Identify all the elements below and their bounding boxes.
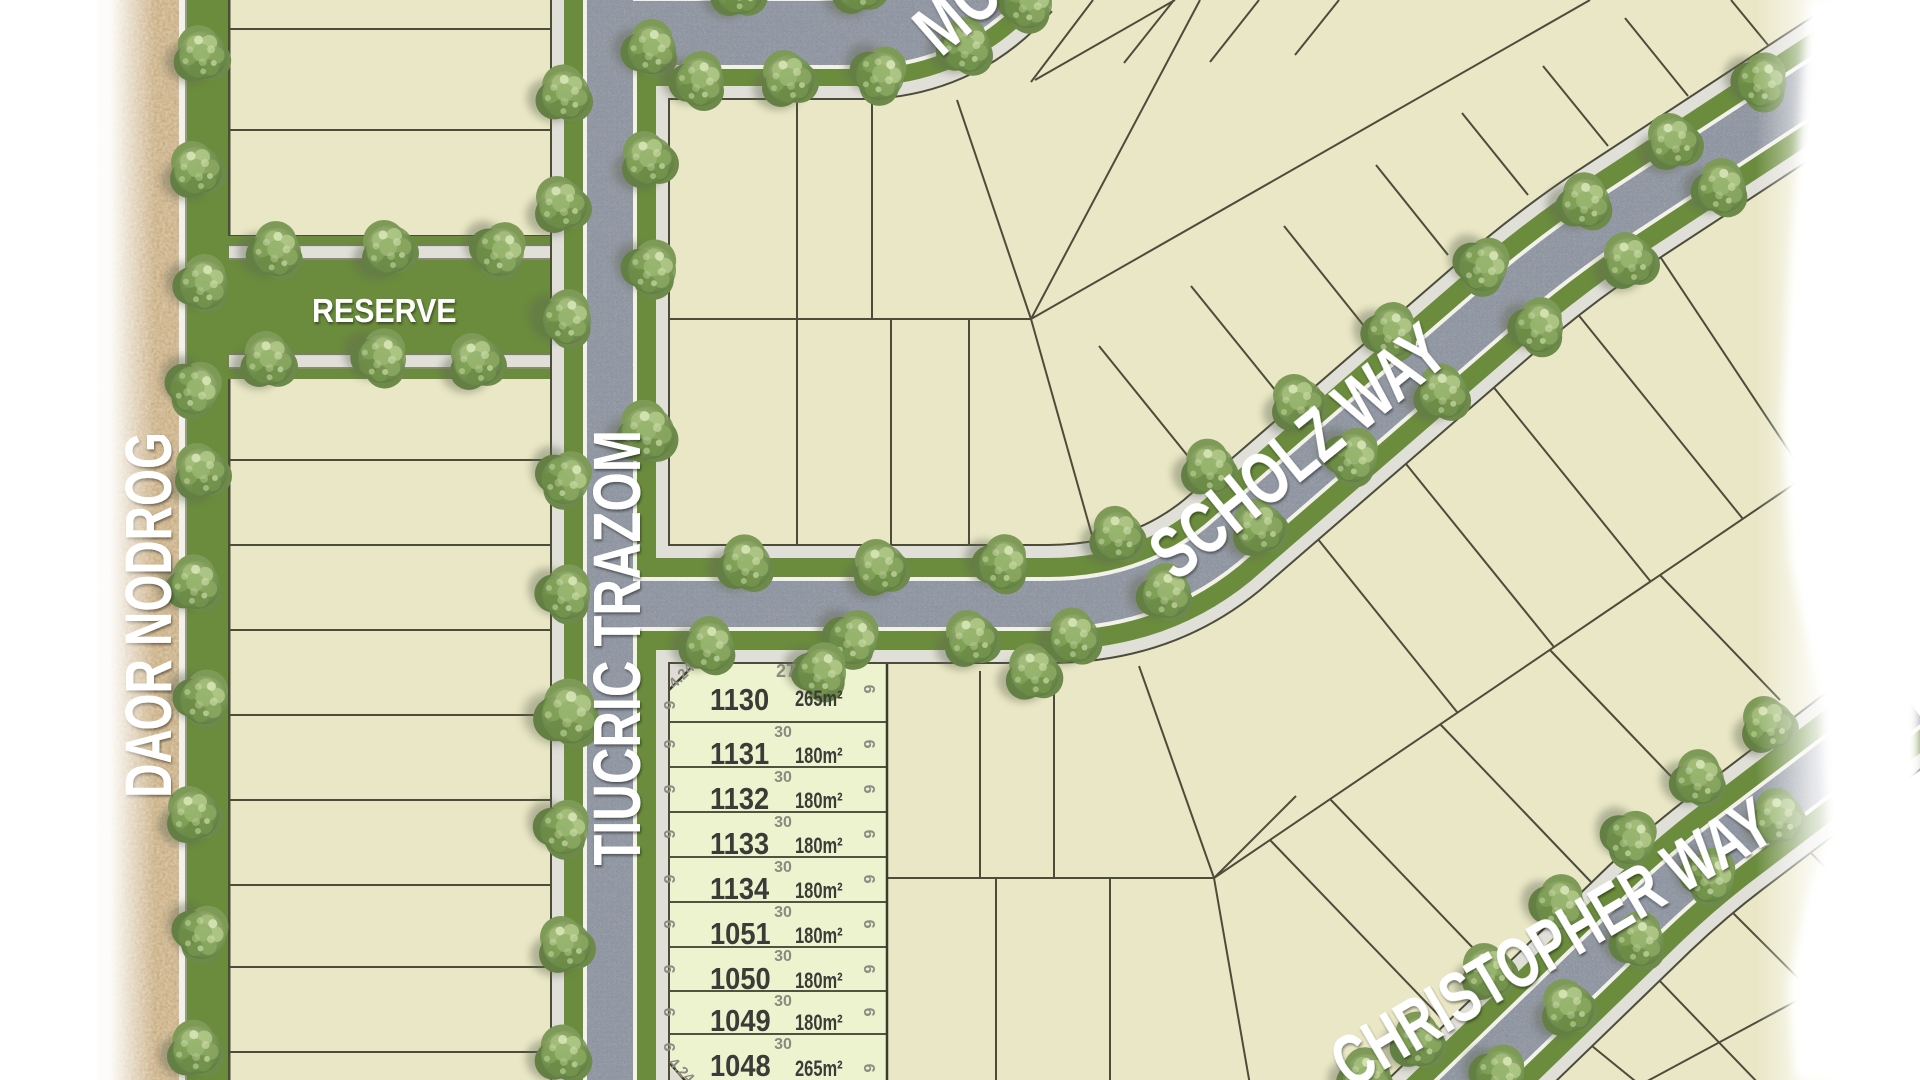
- svg-text:265m²: 265m²: [795, 1057, 843, 1080]
- svg-text:30: 30: [774, 859, 792, 876]
- svg-text:9: 9: [662, 700, 679, 709]
- svg-text:30: 30: [774, 724, 792, 741]
- svg-text:9: 9: [862, 1007, 879, 1016]
- svg-text:C: C: [579, 661, 655, 698]
- svg-text:180m²: 180m²: [795, 789, 843, 814]
- svg-text:9: 9: [862, 739, 879, 748]
- svg-text:9: 9: [862, 1063, 879, 1072]
- svg-text:180m²: 180m²: [795, 744, 843, 769]
- svg-text:30: 30: [774, 993, 792, 1010]
- svg-text:30: 30: [774, 904, 792, 921]
- svg-text:I: I: [579, 821, 655, 835]
- svg-text:180m²: 180m²: [795, 924, 843, 949]
- svg-text:180m²: 180m²: [795, 834, 843, 859]
- svg-text:Z: Z: [579, 512, 655, 543]
- svg-text:9: 9: [662, 829, 679, 838]
- svg-text:30: 30: [774, 769, 792, 786]
- svg-text:1132: 1132: [710, 782, 769, 816]
- svg-text:9: 9: [862, 829, 879, 838]
- svg-text:1133: 1133: [710, 827, 769, 861]
- svg-text:9: 9: [662, 1042, 679, 1051]
- svg-text:30: 30: [774, 1036, 792, 1053]
- svg-text:1134: 1134: [710, 872, 770, 906]
- svg-text:9: 9: [662, 739, 679, 748]
- svg-text:9: 9: [662, 964, 679, 973]
- svg-text:M: M: [579, 430, 655, 472]
- svg-text:1048: 1048: [710, 1049, 771, 1080]
- svg-text:O: O: [579, 472, 655, 511]
- svg-text:R: R: [579, 711, 655, 748]
- svg-text:A: A: [579, 543, 655, 580]
- svg-text:9: 9: [662, 919, 679, 928]
- svg-text:9: 9: [862, 919, 879, 928]
- svg-text:1050: 1050: [710, 962, 771, 996]
- svg-text:180m²: 180m²: [795, 879, 843, 904]
- svg-text:1049: 1049: [710, 1004, 771, 1038]
- svg-text:30: 30: [774, 948, 792, 965]
- svg-text:180m²: 180m²: [795, 1011, 843, 1036]
- svg-text:R: R: [579, 579, 655, 616]
- svg-text:9: 9: [662, 1007, 679, 1016]
- svg-text:9: 9: [862, 784, 879, 793]
- svg-text:265m²: 265m²: [795, 687, 843, 712]
- svg-text:27: 27: [776, 661, 796, 681]
- svg-text:1130: 1130: [710, 683, 769, 717]
- svg-text:9: 9: [862, 874, 879, 883]
- svg-text:RESERVE: RESERVE: [312, 292, 456, 329]
- svg-text:30: 30: [774, 814, 792, 831]
- svg-text:C: C: [579, 748, 655, 785]
- svg-text:T: T: [579, 616, 655, 647]
- svg-text:I: I: [579, 697, 655, 711]
- svg-text:T: T: [579, 835, 655, 866]
- svg-text:1131: 1131: [710, 737, 769, 771]
- svg-text:9: 9: [662, 874, 679, 883]
- svg-text:9: 9: [862, 964, 879, 973]
- svg-text:9: 9: [662, 784, 679, 793]
- svg-text:1051: 1051: [710, 917, 771, 951]
- svg-text:U: U: [579, 784, 655, 821]
- svg-text:180m²: 180m²: [795, 969, 843, 994]
- svg-text:9: 9: [862, 684, 879, 693]
